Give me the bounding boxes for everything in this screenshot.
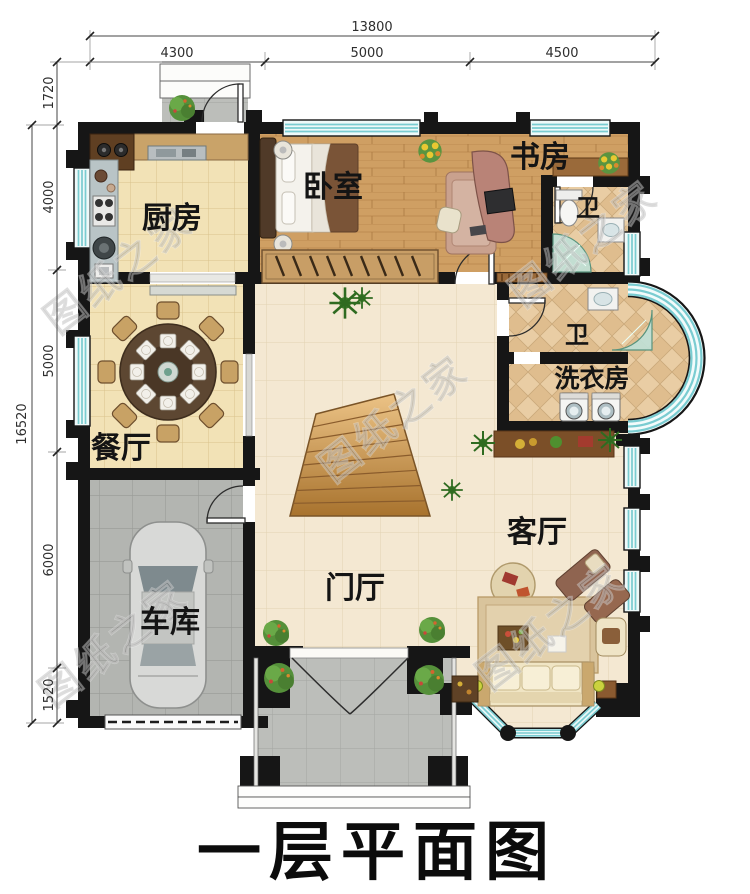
room-label-study: 书房 bbox=[510, 140, 570, 175]
dim-top-seg-2: 5000 bbox=[350, 46, 383, 61]
room-label-kitchen: 厨房 bbox=[142, 201, 202, 236]
living-right-window-1 bbox=[624, 446, 640, 488]
room-label-bath-top: 卫 bbox=[576, 194, 600, 222]
page-title: 一层平面图 bbox=[197, 816, 557, 890]
dim-left-seg-1: 1720 bbox=[42, 76, 57, 109]
washer-2 bbox=[592, 393, 620, 421]
room-label-laundry: 洗衣房 bbox=[554, 364, 629, 393]
room-label-garage: 车库 bbox=[140, 605, 200, 640]
dim-left-seg-5: 1520 bbox=[42, 678, 57, 711]
washer-1 bbox=[560, 393, 588, 421]
kitchen-left-window bbox=[74, 168, 90, 248]
study-top-window bbox=[530, 120, 610, 136]
room-label-living: 客厅 bbox=[507, 515, 567, 550]
dim-left-total: 16520 bbox=[15, 403, 30, 444]
room-label-bath-mid: 卫 bbox=[565, 321, 589, 349]
floor-plan-page: 图纸之家 图纸之家 图纸之家 图纸之家 图纸之家 厨房 卧室 书房 卫 餐厅 卫… bbox=[0, 0, 750, 894]
room-label-foyer: 门厅 bbox=[325, 571, 385, 606]
dim-left-seg-4: 6000 bbox=[42, 543, 57, 576]
room-label-dining: 餐厅 bbox=[91, 431, 151, 466]
dim-left-seg-3: 5000 bbox=[42, 344, 57, 377]
dim-left-seg-2: 4000 bbox=[42, 180, 57, 213]
dim-top-seg-3: 4500 bbox=[545, 46, 578, 61]
wardrobe bbox=[262, 250, 438, 283]
dim-top-seg-1: 4300 bbox=[160, 46, 193, 61]
dim-top-total: 13800 bbox=[351, 20, 392, 35]
back-porch-steps bbox=[160, 64, 250, 98]
dining-left-window bbox=[74, 336, 90, 426]
living-right-window-2 bbox=[624, 508, 640, 550]
room-label-bedroom: 卧室 bbox=[303, 170, 363, 205]
bedroom-top-window bbox=[283, 120, 420, 136]
floor-plan-canvas: 图纸之家 图纸之家 图纸之家 图纸之家 图纸之家 厨房 卧室 书房 卫 餐厅 卫… bbox=[0, 0, 750, 894]
